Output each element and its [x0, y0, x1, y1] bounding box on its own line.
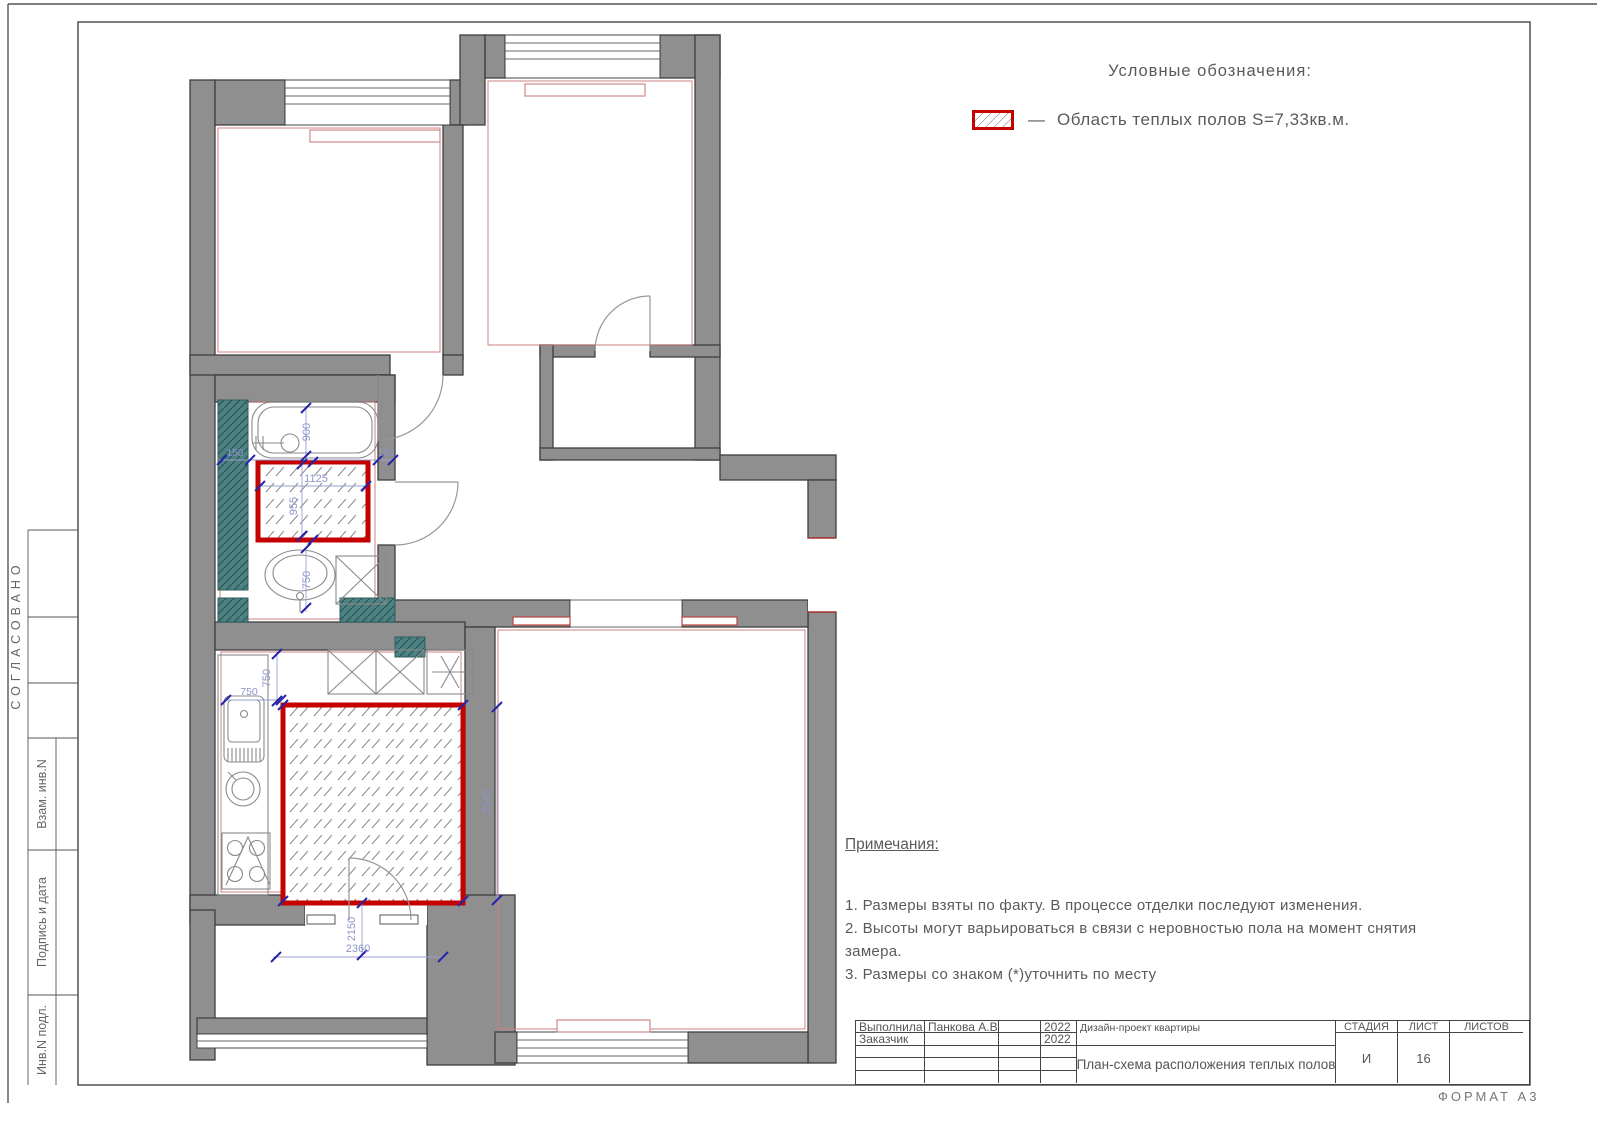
stamp-cell [925, 1071, 999, 1083]
side-label-inv: Инв.N подл. [35, 1005, 49, 1075]
balcony-glazing [197, 1018, 427, 1034]
stamp-sheets-value [1450, 1033, 1523, 1083]
warm-floor-areas [258, 462, 463, 903]
stamp-cell [925, 1046, 999, 1058]
stamp-cell [856, 1071, 925, 1083]
legend-item: — Область теплых полов S=7,33кв.м. [972, 110, 1350, 130]
stamp-stage-label: СТАДИЯ [1336, 1021, 1398, 1033]
dim-wf-955: 955 [288, 497, 300, 515]
stamp-performed-label: Выполнила [856, 1021, 925, 1033]
note-item: 2. Высоты могут варьироваться в связи с … [845, 917, 1465, 963]
stamp-project: Дизайн-проект квартиры [1077, 1021, 1336, 1046]
stamp-performed-year: 2022 [1041, 1021, 1077, 1033]
stamp-cell [1041, 1046, 1077, 1058]
stamp-cell [856, 1058, 925, 1070]
dim-kitchen-2360: 2360 [346, 943, 370, 955]
dim-kitchen-750-h: 750 [240, 686, 258, 698]
stamp-cell [999, 1046, 1041, 1058]
format-label: ФОРМАТ А3 [1438, 1089, 1539, 1104]
dim-kitchen-2545: 2545 [481, 789, 493, 813]
floor-strip-right [682, 617, 737, 625]
stamp-cell [925, 1058, 999, 1070]
dim-kitchen-750-v: 750 [261, 669, 273, 687]
stamp-sheet-label: ЛИСТ [1398, 1021, 1450, 1033]
notes-title: Примечания: [845, 836, 1465, 854]
stamp-cell [1041, 1058, 1077, 1070]
stamp-sheet-value: 16 [1398, 1033, 1450, 1083]
stamp-performed-name: Панкова А.В. [925, 1021, 999, 1033]
stamp-cell [1041, 1071, 1077, 1083]
stamp-cell [999, 1071, 1041, 1083]
dim-wf-1125: 1125 [304, 473, 328, 485]
stamp-customer-label: Заказчик [856, 1033, 925, 1045]
walls [190, 35, 836, 1065]
radiator [525, 84, 645, 96]
stamp-cell [999, 1058, 1041, 1070]
kitchen-pan [226, 772, 260, 806]
side-label-vzam: Взам. инв.N [35, 759, 49, 829]
note-item: 1. Размеры взяты по факту. В процессе от… [845, 894, 1465, 917]
note-item: 3. Размеры со знаком (*)уточнить по мест… [845, 963, 1465, 986]
floor-strip-left [513, 617, 570, 625]
dim-bath-900: 900 [301, 423, 313, 441]
legend-dash: — [1028, 110, 1045, 130]
dim-kitchen-2150: 2150 [346, 917, 358, 941]
notes-block: Примечания: 1. Размеры взяты по факту. В… [845, 836, 1465, 986]
ceiling-light-icon [432, 656, 468, 688]
right-wall-opening [808, 538, 836, 612]
door-bathroom [395, 482, 458, 545]
dim-bath-150-left: 150 [227, 448, 244, 459]
stamp-customer-year: 2022 [1041, 1033, 1077, 1045]
drawing-sheet: СОГЛАСОВАНО Взам. инв.N Подпись и дата И… [0, 0, 1600, 1140]
radiator [557, 1020, 650, 1032]
stamp-cell [856, 1046, 925, 1058]
stamp-cell [999, 1033, 1041, 1045]
side-label-approved: СОГЛАСОВАНО [9, 560, 23, 709]
dim-bath-150-right: 150 [378, 448, 395, 459]
bathtub [252, 402, 378, 458]
stamp-cell [999, 1021, 1041, 1033]
stamp-drawing-title: План-схема расположения теплых полов [1077, 1046, 1336, 1083]
title-block: Выполнила Панкова А.В. 2022 Заказчик 202… [855, 1020, 1530, 1085]
stamp-sheets-label: ЛИСТОВ [1450, 1021, 1523, 1033]
stamp-stage-value: И [1336, 1033, 1398, 1083]
living-doorway [570, 600, 682, 627]
dim-sink-750: 750 [301, 571, 313, 589]
warm-floor-swatch-icon [972, 110, 1014, 130]
warm-floor-kitchen [283, 705, 463, 903]
side-label-podpis: Подпись и дата [35, 877, 49, 967]
stamp-cell [925, 1033, 999, 1045]
legend-label: Область теплых полов S=7,33кв.м. [1057, 110, 1350, 130]
radiator [310, 130, 440, 142]
legend-title: Условные обозначения: [975, 62, 1445, 81]
door-closet [595, 296, 650, 351]
